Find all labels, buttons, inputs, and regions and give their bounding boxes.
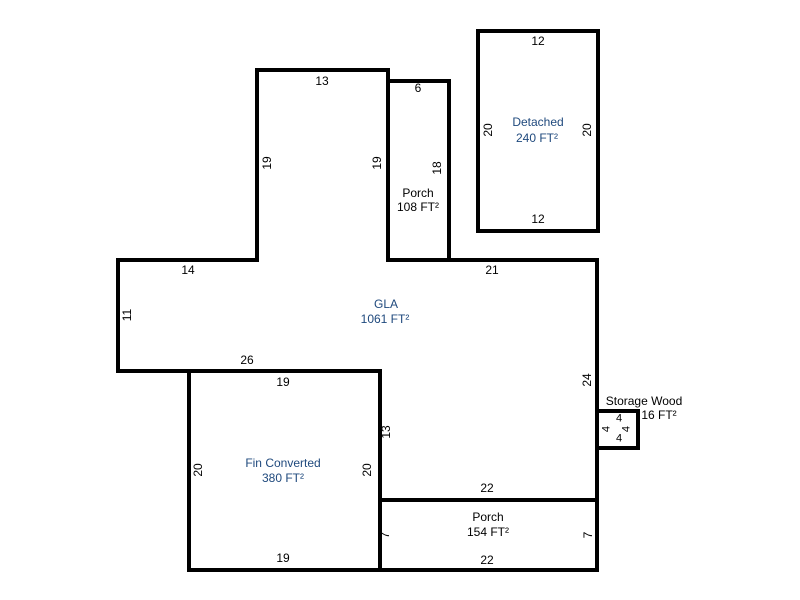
dim-porch-bottom-bottom: 22 xyxy=(480,554,493,566)
dim-porch-top-height: 18 xyxy=(431,161,443,174)
dim-detached-left: 20 xyxy=(482,123,494,136)
dim-gla-left-top-width: 14 xyxy=(181,264,194,276)
room-label-detached-name: Detached xyxy=(512,116,563,128)
room-label-porch-top-name: Porch xyxy=(402,187,433,199)
wall-gla-left-top xyxy=(116,258,259,262)
dim-gla-right-top-width: 21 xyxy=(485,264,498,276)
room-label-porch-top-area: 108 FT² xyxy=(397,201,439,213)
room-label-detached-area: 240 FT² xyxy=(516,132,558,144)
dim-porch-bottom-right: 7 xyxy=(582,532,594,539)
dim-tower-left: 19 xyxy=(261,156,273,169)
room-label-gla-area: 1061 FT² xyxy=(361,313,410,325)
dim-detached-top: 12 xyxy=(531,35,544,47)
room-label-fin-converted-name: Fin Converted xyxy=(245,457,320,469)
wall-storage-right xyxy=(636,409,640,450)
dim-storage-right: 4 xyxy=(622,426,633,432)
wall-gla-bottom xyxy=(116,369,382,373)
dim-detached-right: 20 xyxy=(581,123,593,136)
dim-tower-right: 19 xyxy=(371,156,383,169)
room-label-storage-name: Storage Wood xyxy=(606,395,683,407)
wall-detached-top xyxy=(476,29,600,33)
room-label-storage-area: 16 FT² xyxy=(641,409,676,421)
wall-fin-right xyxy=(378,369,382,572)
wall-storage-bottom xyxy=(597,446,640,450)
dim-porch-top-width: 6 xyxy=(415,82,422,94)
dim-detached-bottom: 12 xyxy=(531,213,544,225)
wall-gla-right-top xyxy=(386,258,599,262)
dim-tower-top: 13 xyxy=(315,75,328,87)
wall-tower-right xyxy=(386,68,390,262)
wall-porch-top-right xyxy=(447,79,451,262)
dim-gla-right-height: 24 xyxy=(581,373,593,386)
dim-storage-left: 4 xyxy=(602,426,613,432)
room-label-gla-name: GLA xyxy=(374,298,398,310)
room-label-porch-bottom-name: Porch xyxy=(472,511,503,523)
room-label-fin-converted-area: 380 FT² xyxy=(262,472,304,484)
dim-storage-top: 4 xyxy=(616,414,622,425)
dim-porch-bottom-left: 7 xyxy=(379,532,391,539)
dim-fin-top: 19 xyxy=(276,376,289,388)
dim-gla-left-height: 11 xyxy=(121,309,133,321)
wall-detached-right xyxy=(596,29,600,233)
dim-gla-bottom-width: 26 xyxy=(240,354,253,366)
dim-fin-right: 20 xyxy=(361,463,373,476)
wall-gla-right xyxy=(595,258,599,572)
wall-bottom xyxy=(187,568,599,572)
wall-detached-left xyxy=(476,29,480,233)
room-label-porch-bottom-area: 154 FT² xyxy=(467,526,509,538)
wall-detached-bottom xyxy=(476,229,600,233)
dim-fin-left: 20 xyxy=(192,463,204,476)
dim-fin-bottom: 19 xyxy=(276,552,289,564)
wall-tower-top xyxy=(255,68,390,72)
floor-plan-sketch: GLA 1061 FT² Porch 108 FT² Detached 240 … xyxy=(0,0,800,600)
dim-gla-inner-height: 13 xyxy=(380,425,392,438)
wall-tower-left xyxy=(255,68,259,262)
dim-porch-bottom-top: 22 xyxy=(480,482,493,494)
dim-storage-bottom: 4 xyxy=(616,434,622,445)
wall-porch-bottom-top xyxy=(378,498,599,502)
